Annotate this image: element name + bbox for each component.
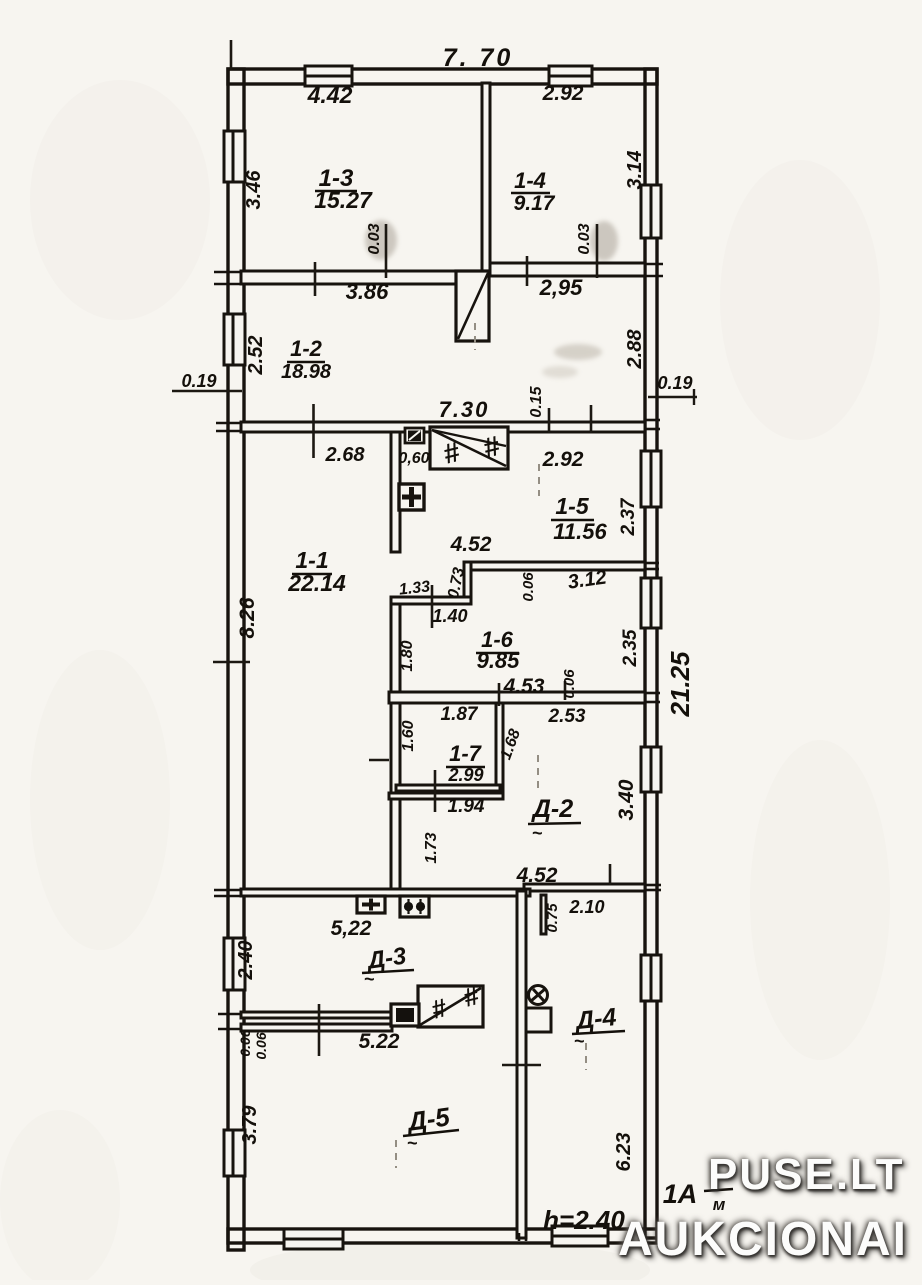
svg-text:0.75: 0.75 (544, 903, 561, 933)
svg-text:5,22: 5,22 (331, 917, 372, 940)
svg-text:2.92: 2.92 (542, 448, 584, 471)
svg-text:0.06: 0.06 (237, 1029, 253, 1056)
svg-text:4.52: 4.52 (450, 533, 492, 556)
svg-text:22.14: 22.14 (287, 570, 346, 596)
svg-text:2.10: 2.10 (568, 897, 604, 917)
svg-text:~: ~ (574, 1031, 585, 1051)
svg-text:Д-2: Д-2 (531, 795, 573, 823)
svg-text:3.46: 3.46 (243, 170, 265, 210)
svg-text:9.17: 9.17 (514, 192, 556, 215)
svg-text:0.19: 0.19 (657, 373, 692, 393)
svg-text:15.27: 15.27 (314, 187, 373, 213)
svg-text:1.40: 1.40 (432, 606, 467, 626)
svg-text:0,60: 0,60 (398, 450, 429, 467)
svg-text:21.25: 21.25 (665, 651, 695, 718)
svg-text:3.14: 3.14 (624, 151, 646, 190)
svg-text:0.03: 0.03 (576, 223, 593, 254)
svg-text:0.15: 0.15 (528, 385, 545, 417)
svg-text:~: ~ (407, 1133, 418, 1153)
svg-text:6.23: 6.23 (613, 1133, 635, 1172)
svg-text:2.99: 2.99 (447, 765, 483, 785)
svg-text:2,95: 2,95 (539, 275, 584, 300)
svg-text:h=2.40: h=2.40 (543, 1205, 625, 1235)
svg-text:4.53: 4.53 (503, 675, 545, 698)
svg-text:1.87: 1.87 (441, 704, 479, 725)
svg-text:1.80: 1.80 (399, 640, 416, 671)
svg-text:7.30: 7.30 (439, 397, 490, 422)
svg-text:~: ~ (364, 969, 375, 989)
svg-text:1-4: 1-4 (514, 168, 546, 193)
svg-text:3.79: 3.79 (239, 1105, 261, 1145)
svg-text:0.19: 0.19 (181, 371, 216, 391)
svg-text:~: ~ (532, 823, 543, 843)
svg-text:2.68: 2.68 (325, 444, 366, 466)
svg-text:1.33: 1.33 (398, 578, 431, 598)
svg-text:1.73: 1.73 (423, 832, 440, 863)
svg-text:3.40: 3.40 (615, 779, 638, 820)
svg-text:5.22: 5.22 (359, 1030, 400, 1053)
svg-text:0.03: 0.03 (366, 223, 383, 254)
svg-text:1-2: 1-2 (290, 336, 323, 361)
svg-text:3.86: 3.86 (346, 279, 390, 304)
svg-text:1.60: 1.60 (400, 720, 417, 751)
svg-text:4.52: 4.52 (516, 864, 558, 887)
svg-text:2.92: 2.92 (542, 82, 584, 105)
svg-text:2.37: 2.37 (618, 497, 639, 536)
svg-text:11.56: 11.56 (553, 519, 607, 544)
svg-text:1-7: 1-7 (449, 741, 483, 766)
svg-text:8.26: 8.26 (236, 597, 259, 638)
svg-text:1-5: 1-5 (555, 493, 589, 519)
svg-text:2.35: 2.35 (620, 629, 641, 667)
svg-text:18.98: 18.98 (281, 361, 332, 383)
svg-text:9.85: 9.85 (477, 648, 521, 673)
svg-text:0.06: 0.06 (520, 572, 537, 602)
svg-text:2.53: 2.53 (548, 706, 586, 727)
svg-text:7. 70: 7. 70 (443, 44, 514, 72)
svg-text:0.06: 0.06 (253, 1032, 269, 1059)
svg-text:1.94: 1.94 (448, 796, 485, 817)
svg-text:2.40: 2.40 (235, 941, 257, 981)
svg-text:1A: 1A (663, 1179, 698, 1209)
svg-text:0.06: 0.06 (561, 669, 578, 699)
svg-text:2.88: 2.88 (624, 329, 646, 370)
svg-text:4.42: 4.42 (307, 82, 353, 108)
svg-text:2.52: 2.52 (245, 336, 267, 376)
